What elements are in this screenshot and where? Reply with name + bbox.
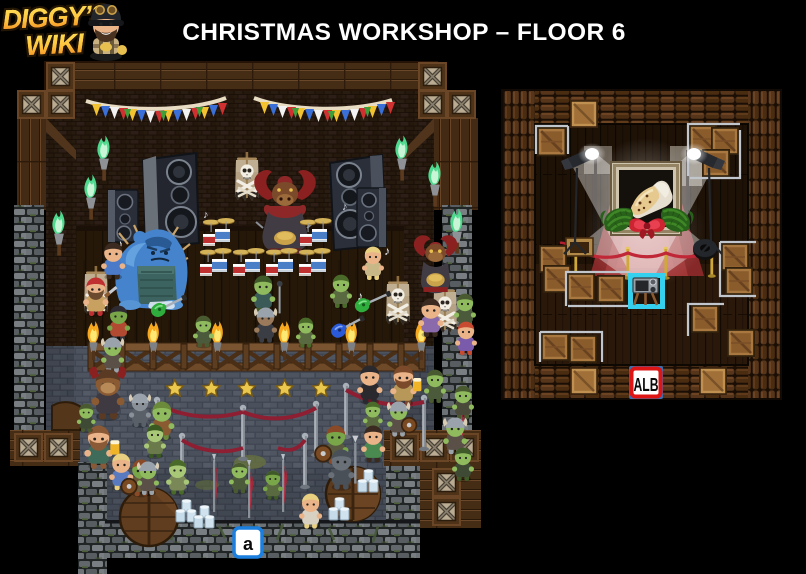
svg-text:CHRISTMAS WORKSHOP – FLOOR 6: CHRISTMAS WORKSHOP – FLOOR 6	[182, 19, 626, 46]
svg-text:a: a	[243, 534, 254, 554]
svg-text:WIKI: WIKI	[25, 28, 85, 61]
svg-text:♪: ♪	[384, 244, 390, 258]
svg-text:♪: ♪	[342, 201, 348, 213]
svg-text:ALB: ALB	[634, 375, 659, 395]
svg-text:♪: ♪	[203, 209, 209, 221]
